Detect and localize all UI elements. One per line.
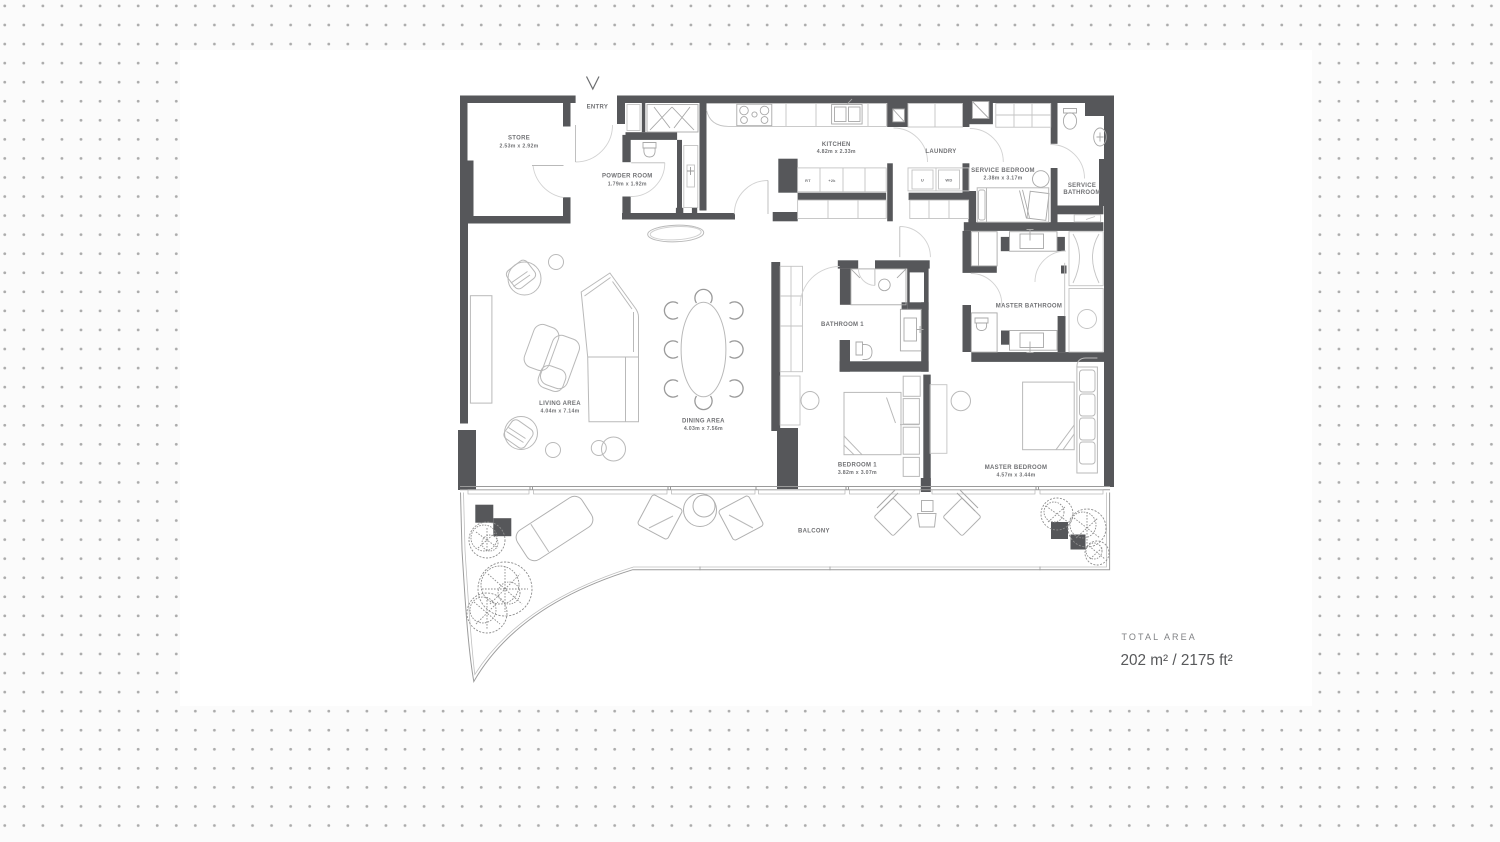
svg-text:ENTRY: ENTRY xyxy=(587,105,609,111)
svg-text:MASTER BATHROOM: MASTER BATHROOM xyxy=(996,304,1062,310)
svg-text:U: U xyxy=(921,178,924,183)
svg-text:SERVICE BEDROOM: SERVICE BEDROOM xyxy=(971,168,1035,174)
svg-text:STORE: STORE xyxy=(508,135,530,141)
svg-text:DINING AREA: DINING AREA xyxy=(682,418,725,424)
svg-text:4.82m x 2.33m: 4.82m x 2.33m xyxy=(817,149,856,155)
svg-text:MASTER BEDROOM: MASTER BEDROOM xyxy=(985,465,1048,471)
svg-text:2.38m x 3.17m: 2.38m x 3.17m xyxy=(983,175,1022,181)
svg-text:+2k: +2k xyxy=(828,179,836,183)
svg-text:BALCONY: BALCONY xyxy=(798,529,830,535)
svg-text:POWDER ROOM: POWDER ROOM xyxy=(602,173,653,179)
svg-text:WD: WD xyxy=(945,178,952,183)
svg-text:4.04m x 7.14m: 4.04m x 7.14m xyxy=(540,408,579,414)
svg-text:1.79m x 1.92m: 1.79m x 1.92m xyxy=(608,181,647,187)
svg-text:4.03m x 7.56m: 4.03m x 7.56m xyxy=(684,426,723,432)
svg-text:TOTAL AREA: TOTAL AREA xyxy=(1122,632,1197,642)
svg-text:SERVICE: SERVICE xyxy=(1068,183,1096,189)
svg-text:202 m² / 2175 ft²: 202 m² / 2175 ft² xyxy=(1121,652,1233,669)
svg-text:2.53m x 2.92m: 2.53m x 2.92m xyxy=(499,143,538,149)
svg-text:RT: RT xyxy=(805,179,811,183)
svg-text:LIVING AREA: LIVING AREA xyxy=(539,401,581,407)
svg-text:3.82m x 3.07m: 3.82m x 3.07m xyxy=(838,470,877,476)
svg-text:BEDROOM 1: BEDROOM 1 xyxy=(838,462,877,468)
svg-text:LAUNDRY: LAUNDRY xyxy=(925,149,956,155)
svg-text:BATHROOM: BATHROOM xyxy=(1063,190,1100,196)
svg-text:BATHROOM 1: BATHROOM 1 xyxy=(821,322,864,328)
svg-text:KITCHEN: KITCHEN xyxy=(822,142,851,148)
svg-text:4.57m x 3.44m: 4.57m x 3.44m xyxy=(996,473,1035,479)
